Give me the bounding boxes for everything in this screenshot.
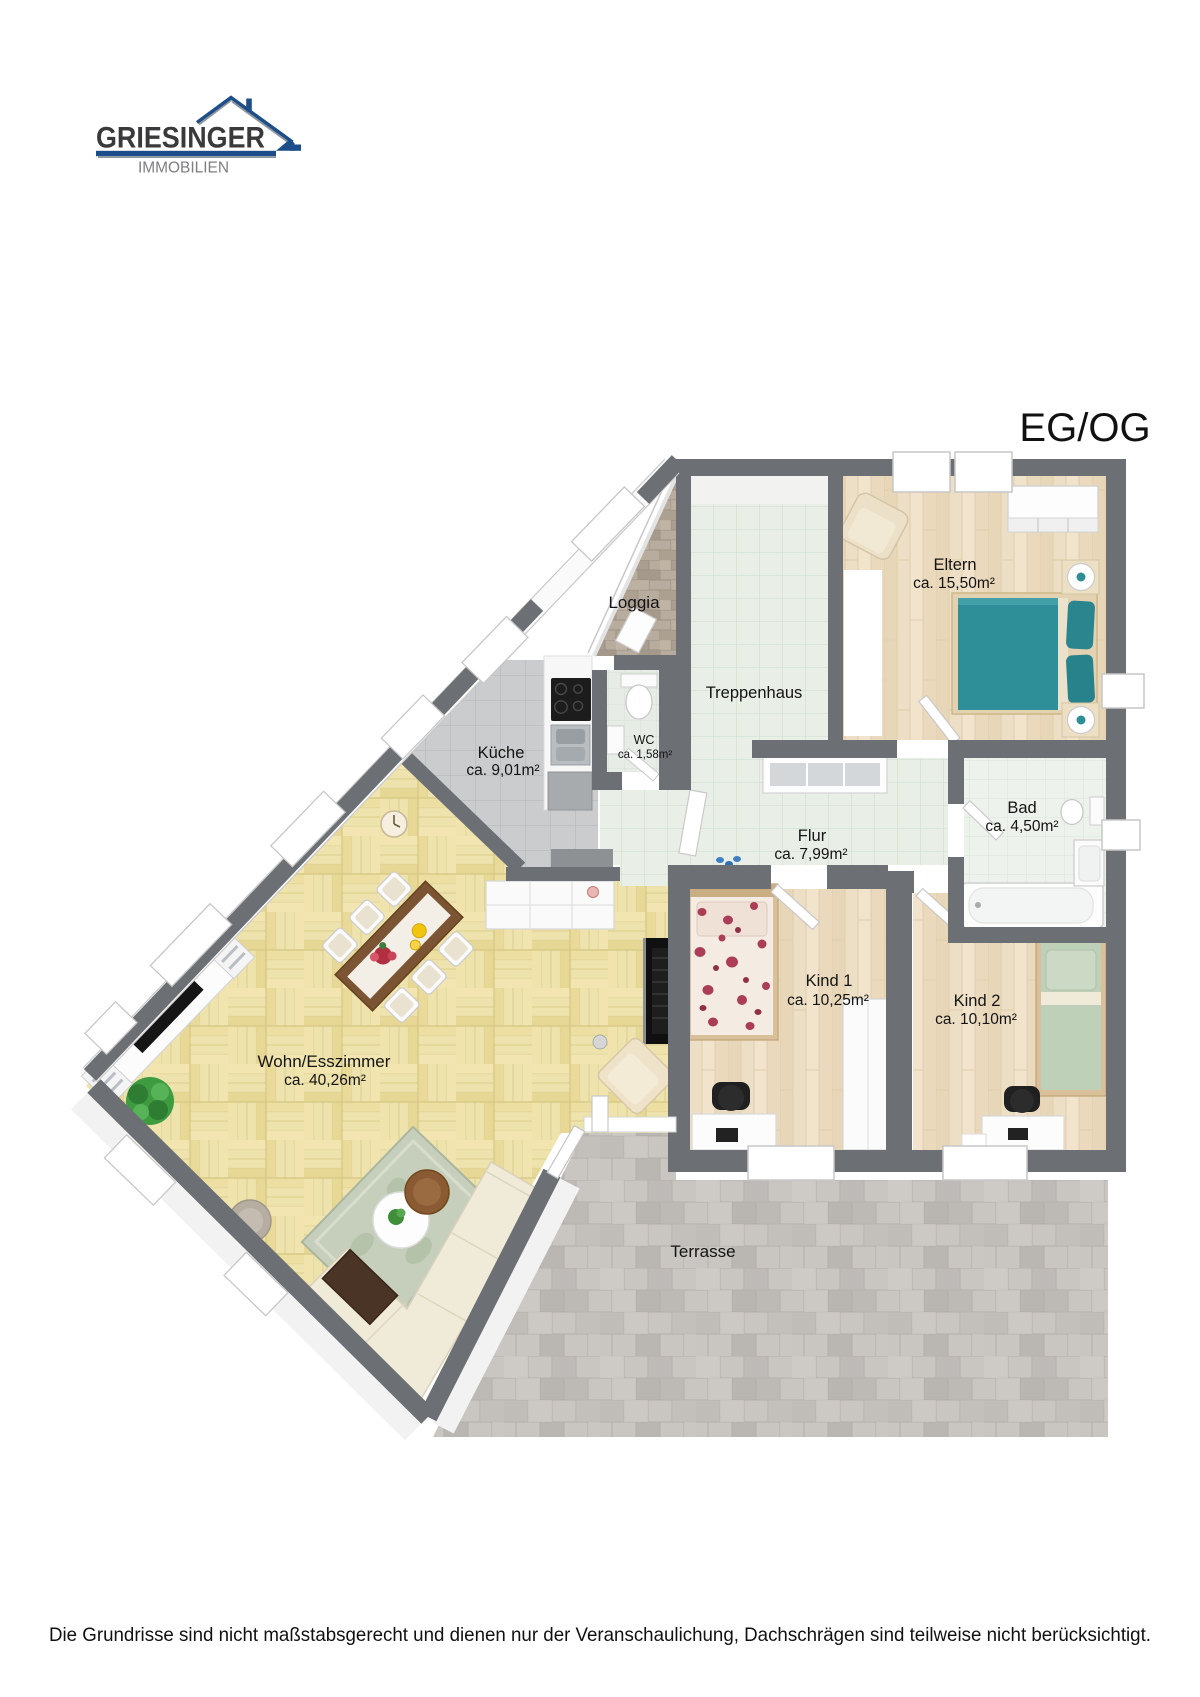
svg-text:Wohn/Esszimmer: Wohn/Esszimmer: [258, 1052, 391, 1071]
svg-text:Bad: Bad: [1007, 799, 1036, 817]
svg-text:ca. 4,50m²: ca. 4,50m²: [985, 818, 1058, 835]
svg-text:Küche: Küche: [478, 744, 525, 762]
svg-text:IMMOBILIEN: IMMOBILIEN: [138, 160, 229, 177]
svg-text:ca. 1,58m²: ca. 1,58m²: [618, 749, 672, 761]
svg-text:ca. 10,10m²: ca. 10,10m²: [935, 1011, 1017, 1028]
svg-text:Die Grundrisse sind nicht maßs: Die Grundrisse sind nicht maßstabsgerech…: [49, 1624, 1151, 1646]
svg-text:ca. 7,99m²: ca. 7,99m²: [774, 846, 847, 863]
svg-text:Terrasse: Terrasse: [670, 1242, 735, 1261]
svg-text:Kind 2: Kind 2: [954, 992, 1001, 1010]
svg-text:ca. 15,50m²: ca. 15,50m²: [913, 575, 995, 592]
svg-text:GRIESINGER: GRIESINGER: [96, 122, 265, 155]
svg-text:Kind 1: Kind 1: [806, 972, 853, 990]
svg-text:ca. 40,26m²: ca. 40,26m²: [284, 1072, 366, 1089]
svg-text:WC: WC: [634, 733, 655, 747]
svg-text:Loggia: Loggia: [608, 593, 660, 612]
svg-text:Treppenhaus: Treppenhaus: [706, 684, 803, 702]
svg-text:ca. 10,25m²: ca. 10,25m²: [787, 992, 869, 1009]
svg-text:ca. 9,01m²: ca. 9,01m²: [466, 762, 539, 779]
svg-text:Eltern: Eltern: [933, 556, 976, 574]
svg-text:Flur: Flur: [798, 827, 827, 845]
svg-text:EG/OG: EG/OG: [1019, 406, 1150, 450]
